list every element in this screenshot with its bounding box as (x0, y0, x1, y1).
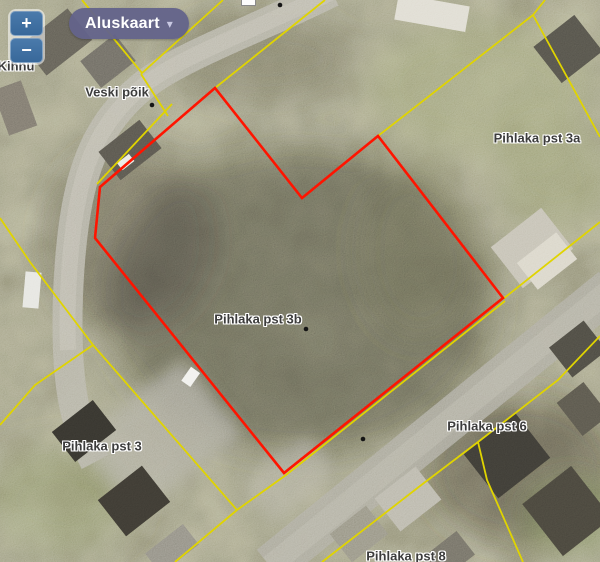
basemap-button-label: Aluskaart (85, 15, 160, 33)
address-point-dot (150, 103, 155, 108)
address-point-dot (361, 437, 366, 442)
basemap-dropdown-button[interactable]: Aluskaart ▾ (69, 8, 189, 39)
map-viewport[interactable]: Veski põikPihlaka pst 3aPihlaka pst 3bPi… (0, 0, 600, 562)
aerial-photo-layer (0, 0, 600, 562)
zoom-control: + − (8, 9, 45, 65)
chevron-down-icon: ▾ (167, 18, 173, 30)
address-point-dot (278, 3, 283, 8)
clipped-label-fragment (241, 0, 256, 6)
zoom-in-button[interactable]: + (10, 11, 43, 36)
address-point-dot (304, 327, 309, 332)
zoom-out-button[interactable]: − (10, 38, 43, 63)
